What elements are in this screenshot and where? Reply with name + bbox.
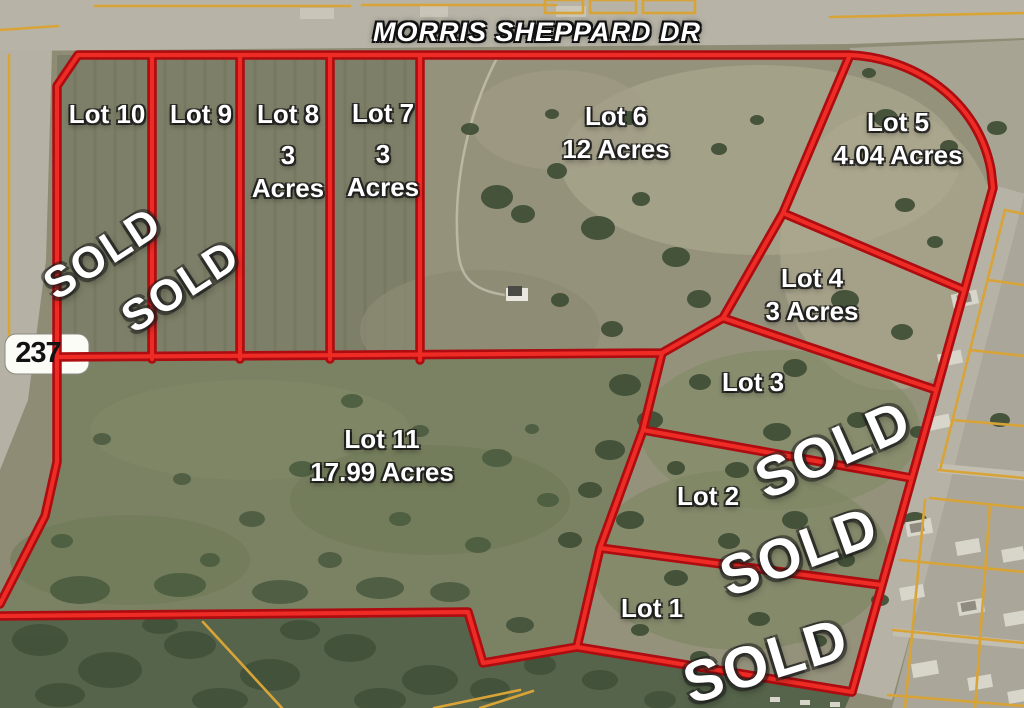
lot-2-label: Lot 2 — [677, 480, 739, 513]
lot-4-label: Lot 4 3 Acres — [766, 262, 859, 328]
lot-1-label: Lot 1 — [621, 592, 683, 625]
lot-5-label: Lot 5 4.04 Acres — [833, 106, 962, 172]
lot-8-label: Lot 8 3 Acres — [252, 98, 324, 205]
lot-7-label: Lot 7 3 Acres — [347, 97, 419, 204]
lot-3-label: Lot 3 — [722, 366, 784, 399]
road-label: MORRIS SHEPPARD DR — [373, 17, 701, 48]
lot-11-label: Lot 11 17.99 Acres — [310, 423, 454, 489]
lot-10-label: Lot 10 — [69, 98, 146, 131]
lot-9-label: Lot 9 — [170, 98, 232, 131]
lot-map: MORRIS SHEPPARD DR 237 Lot 10 Lot 9 Lot … — [0, 0, 1024, 708]
lot-6-label: Lot 6 12 Acres — [562, 100, 669, 166]
highway-shield-number: 237 — [10, 337, 66, 370]
